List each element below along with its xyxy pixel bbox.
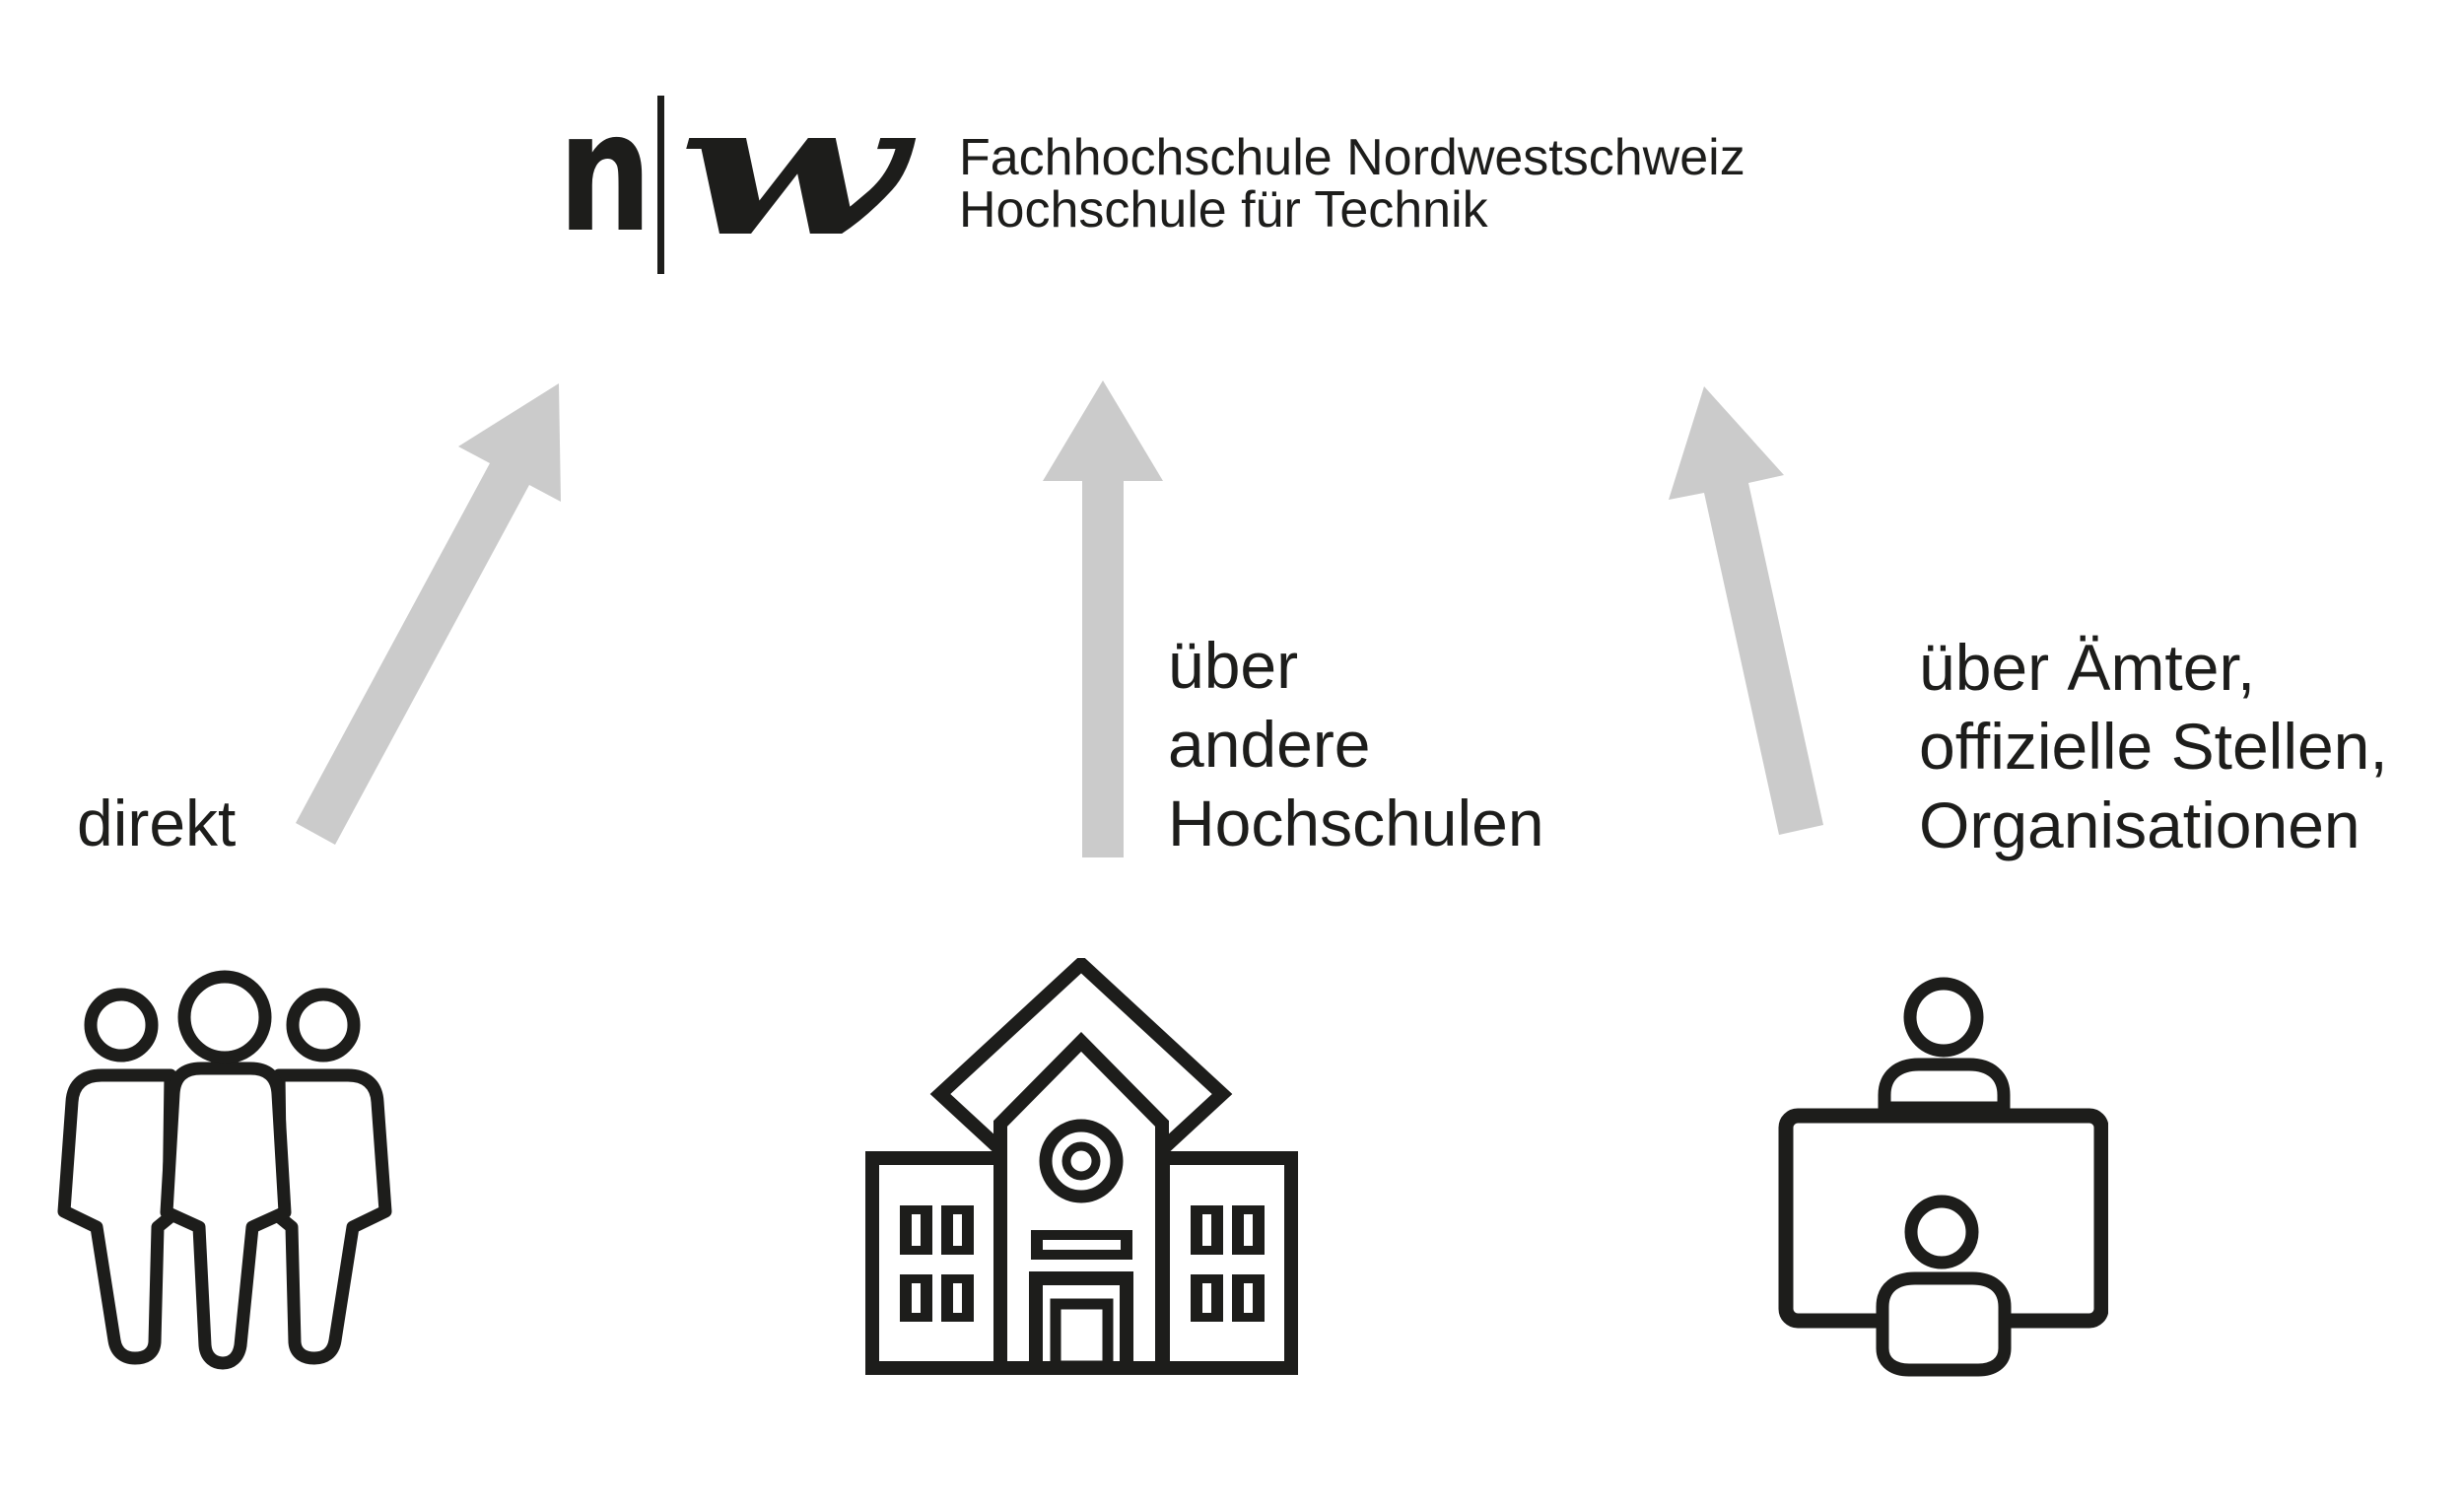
logo-divider: [657, 96, 664, 274]
label-line: andere: [1168, 705, 1544, 784]
logo-letter-w: w: [678, 78, 908, 262]
label-line: offizielle Stellen,: [1919, 707, 2388, 786]
label-line: Hochschulen: [1168, 784, 1544, 862]
logo-wordmark: Fachhochschule Nordwestschweiz Hochschul…: [959, 132, 1745, 237]
logo-wordmark-line1: Fachhochschule Nordwestschweiz: [959, 132, 1745, 184]
label-line: über Ämter,: [1919, 628, 2388, 707]
reception-desk-icon: [1778, 970, 2108, 1378]
label-line: Organisationen: [1919, 786, 2388, 864]
label-direct: direkt: [77, 784, 236, 862]
logo-wordmark-line2: Hochschule für Technik: [959, 184, 1745, 237]
label-via-offices: über Ämter, offizielle Stellen, Organisa…: [1919, 628, 2388, 864]
arrow-via-universities: [1043, 380, 1163, 857]
arrow-direct: [296, 383, 561, 845]
arrow-via-offices: [1669, 386, 1823, 835]
diagram-canvas: n w Fachhochschule Nordwestschweiz Hochs…: [0, 0, 2464, 1508]
people-group-icon: [57, 968, 392, 1372]
label-line: direkt: [77, 784, 236, 862]
label-line: über: [1168, 626, 1544, 705]
logo-letter-n: n: [558, 90, 652, 255]
school-building-icon: [856, 958, 1309, 1382]
label-via-universities: über andere Hochschulen: [1168, 626, 1544, 862]
